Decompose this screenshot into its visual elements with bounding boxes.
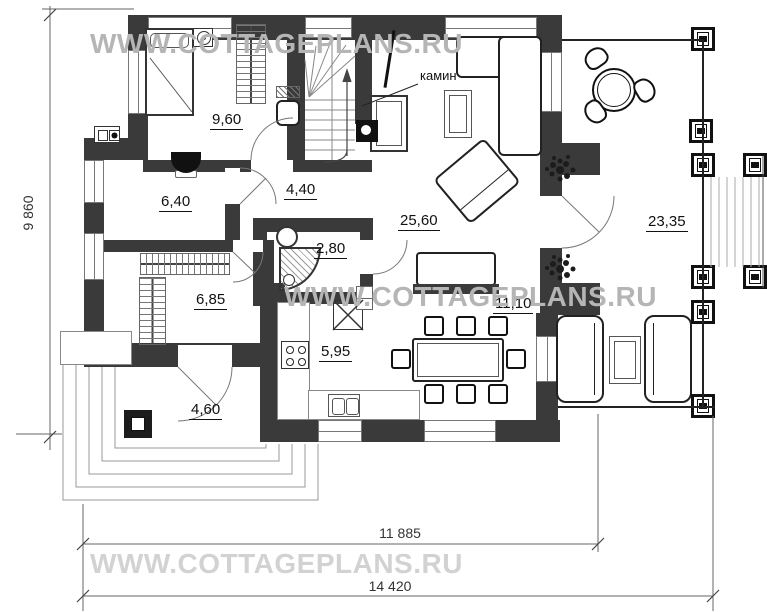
watermark: WWW.COTTAGEPLANS.RU xyxy=(90,548,463,580)
plant-icon xyxy=(545,155,576,182)
plant-icon xyxy=(545,254,576,281)
room-area-entry: 6,85 xyxy=(194,291,227,310)
stairs-arrow xyxy=(324,70,351,162)
room-area-living: 25,60 xyxy=(398,212,440,231)
room-area-hallway: 4,40 xyxy=(284,181,317,200)
dim-width-main: 11 885 xyxy=(340,525,460,541)
floor-plan: 9,60 6,40 4,40 2,80 6,85 25,60 11,10 5,9… xyxy=(0,0,767,612)
terrace-edge xyxy=(558,40,715,407)
room-area-terrace: 23,35 xyxy=(646,213,688,232)
room-area-kitchen: 5,95 xyxy=(319,343,352,362)
fireplace-label: камин xyxy=(418,68,459,84)
room-area-porch: 4,60 xyxy=(189,401,222,420)
room-area-room-left: 6,40 xyxy=(159,193,192,212)
terrace-steps xyxy=(711,156,763,288)
watermark: WWW.COTTAGEPLANS.RU xyxy=(90,28,463,60)
dim-height: 9 860 xyxy=(20,181,36,245)
room-area-bedroom: 9,60 xyxy=(210,111,243,130)
room-area-shower: 2,80 xyxy=(314,240,347,259)
watermark: WWW.COTTAGEPLANS.RU xyxy=(284,281,657,313)
dim-width-total: 14 420 xyxy=(330,578,450,594)
door-arcs xyxy=(178,118,614,421)
